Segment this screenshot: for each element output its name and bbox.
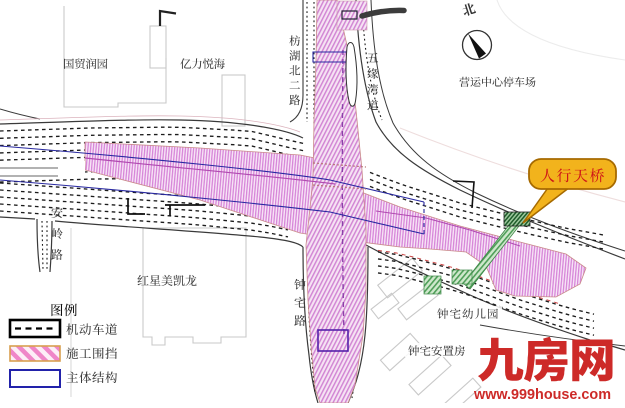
svg-text:www.999house.com: www.999house.com <box>473 387 611 403</box>
